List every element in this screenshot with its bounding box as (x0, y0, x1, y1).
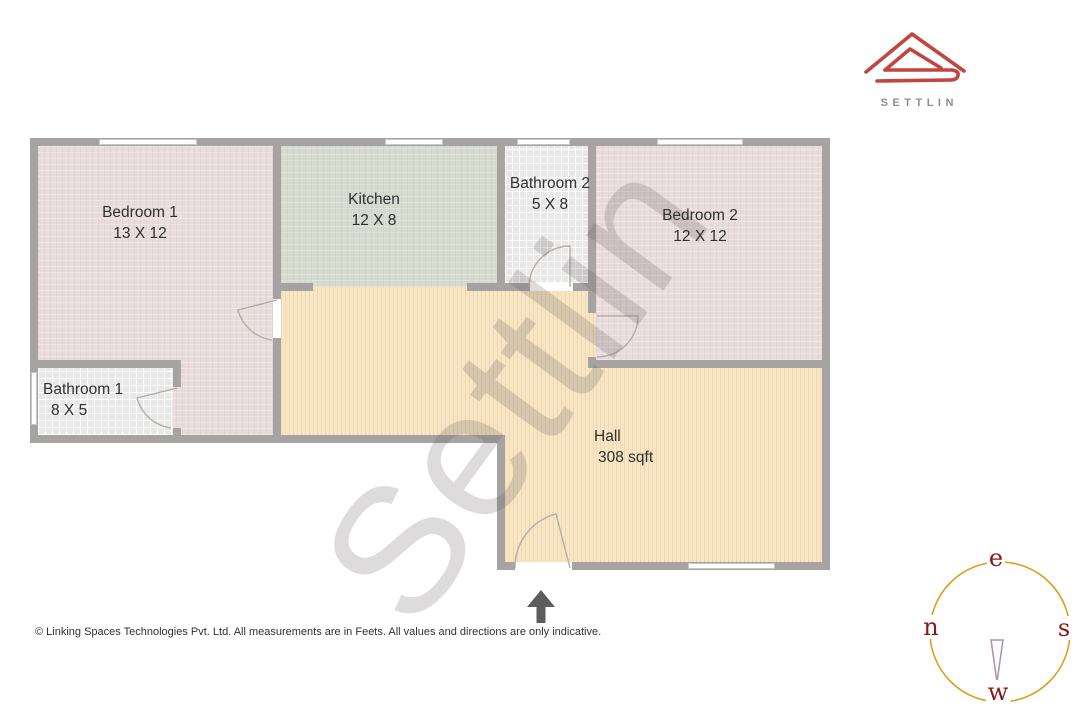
brand-name: SETTLIN (856, 97, 978, 109)
north-arrow-icon (526, 590, 556, 624)
wall (273, 283, 313, 291)
room-dims: 12 X 8 (309, 210, 439, 231)
wall (273, 138, 281, 299)
compass-dir-bottom: w (986, 680, 1011, 704)
wall (588, 360, 830, 368)
compass-dir-left: n (921, 615, 940, 639)
window (385, 139, 443, 145)
window (657, 139, 743, 145)
compass-needle-icon (991, 640, 1003, 682)
room-hall-floor (497, 291, 596, 562)
wall (173, 428, 181, 443)
compass-dir-top: e (987, 546, 1005, 570)
room-name: Hall (594, 428, 621, 445)
room-label-kitchen: Kitchen 12 X 8 (309, 189, 439, 231)
wall (273, 338, 281, 443)
room-label-bathroom2: Bathroom 2 5 X 8 (503, 173, 597, 215)
room-dims: 8 X 5 (43, 400, 123, 421)
room-dims: 5 X 8 (503, 194, 597, 215)
room-name: Bedroom 1 (102, 204, 178, 221)
compass-dir-right: s (1056, 616, 1072, 640)
wall (30, 435, 505, 443)
wall (497, 562, 515, 570)
window (31, 372, 37, 425)
wall (173, 360, 181, 387)
wall (497, 283, 530, 291)
room-dims: 12 X 12 (635, 226, 765, 247)
room-dims: 13 X 12 (75, 223, 205, 244)
wall (588, 138, 596, 313)
window (688, 563, 775, 569)
room-area: 308 sqft (594, 447, 653, 468)
room-bedroom2-floor (596, 146, 822, 360)
roof-logo-icon (856, 28, 978, 90)
room-name: Bathroom 1 (43, 381, 123, 398)
room-name: Kitchen (348, 191, 400, 208)
room-name: Bedroom 2 (662, 207, 738, 224)
window (517, 139, 570, 145)
room-hall-floor (281, 287, 497, 435)
disclaimer-text: © Linking Spaces Technologies Pvt. Ltd. … (35, 626, 601, 638)
window (99, 139, 197, 145)
room-label-bathroom1: Bathroom 1 8 X 5 (43, 379, 123, 421)
room-label-hall: Hall 308 sqft (594, 426, 653, 468)
brand-logo: SETTLIN (856, 28, 978, 109)
wall (822, 138, 830, 570)
room-label-bedroom1: Bedroom 1 13 X 12 (75, 202, 205, 244)
wall (497, 435, 505, 570)
room-name: Bathroom 2 (510, 175, 590, 192)
room-label-bedroom2: Bedroom 2 12 X 12 (635, 205, 765, 247)
wall (30, 360, 181, 368)
